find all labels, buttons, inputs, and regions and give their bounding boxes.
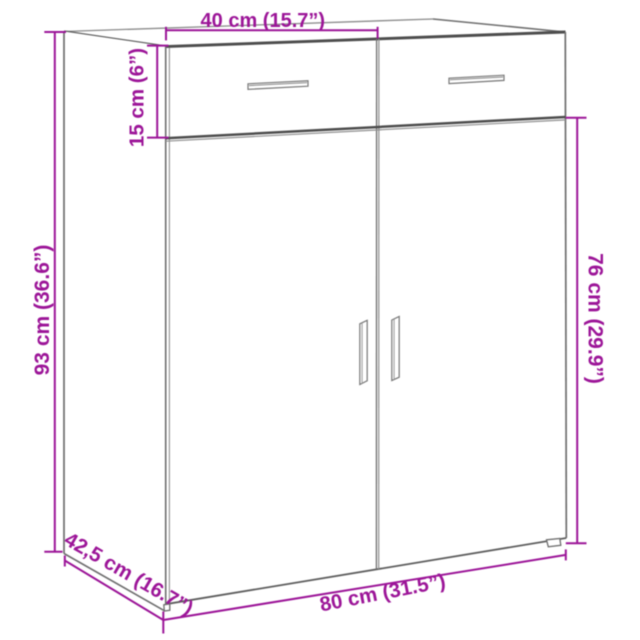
svg-text:76 cm (29.9”): 76 cm (29.9”) xyxy=(584,253,607,384)
svg-text:15 cm (6”): 15 cm (6”) xyxy=(125,48,148,147)
svg-text:40 cm (15.7”): 40 cm (15.7”) xyxy=(201,10,326,32)
svg-text:93 cm (36.6”): 93 cm (36.6”) xyxy=(31,245,54,376)
